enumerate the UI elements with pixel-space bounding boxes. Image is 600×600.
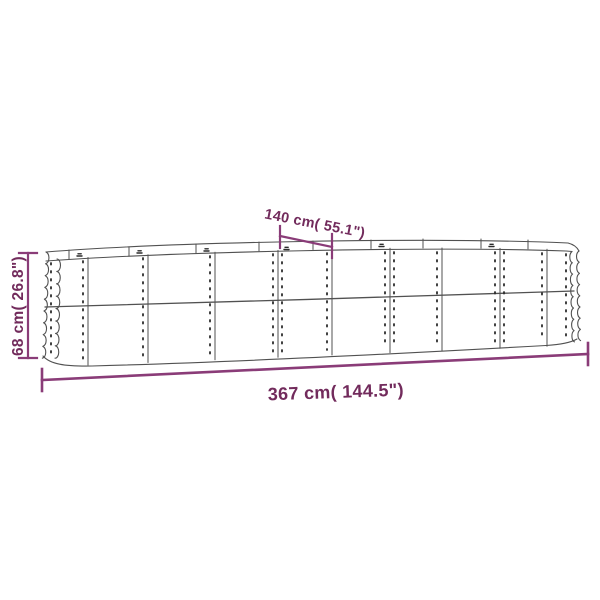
product-dimension-image: 68 cm( 26.8") 140 cm( 55.1") 367 cm( 144… (0, 0, 600, 600)
height-label: 68 cm( 26.8") (10, 256, 27, 356)
length-label: 367 cm( 144.5") (267, 380, 404, 405)
right-end-inner-wave (570, 252, 575, 342)
rivet-dots (51, 252, 566, 360)
raised-bed-drawing (42, 239, 580, 366)
width-label: 140 cm( 55.1") (263, 206, 366, 241)
bottom-edge (43, 339, 577, 366)
right-end-outer-wave (577, 251, 581, 341)
left-end-outer-wave (42, 252, 49, 358)
panel-seams (88, 248, 547, 365)
rim-front-edge (46, 249, 572, 261)
left-end-inner-wave (55, 259, 60, 358)
diagram-canvas: 68 cm( 26.8") 140 cm( 55.1") 367 cm( 144… (0, 0, 600, 600)
